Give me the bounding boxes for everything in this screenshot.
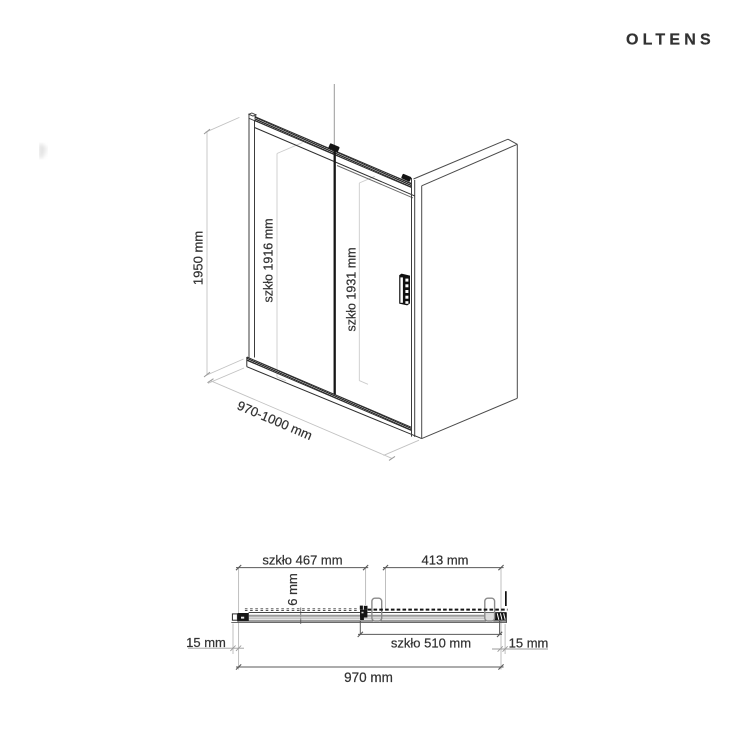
svg-text:1950 mm: 1950 mm <box>191 231 206 285</box>
svg-text:szkło 510 mm: szkło 510 mm <box>391 636 471 651</box>
svg-text:szkło 467 mm: szkło 467 mm <box>262 553 342 568</box>
svg-text:szkło 1931 mm: szkło 1931 mm <box>345 247 359 331</box>
svg-text:6 mm: 6 mm <box>285 573 300 606</box>
svg-text:413 mm: 413 mm <box>422 553 469 568</box>
svg-text:OLTENS: OLTENS <box>626 32 715 49</box>
svg-text:15 mm: 15 mm <box>509 636 549 651</box>
svg-text:970 mm: 970 mm <box>344 670 393 685</box>
svg-text:15 mm: 15 mm <box>186 635 226 650</box>
svg-text:szkło 1916 mm: szkło 1916 mm <box>262 218 276 302</box>
